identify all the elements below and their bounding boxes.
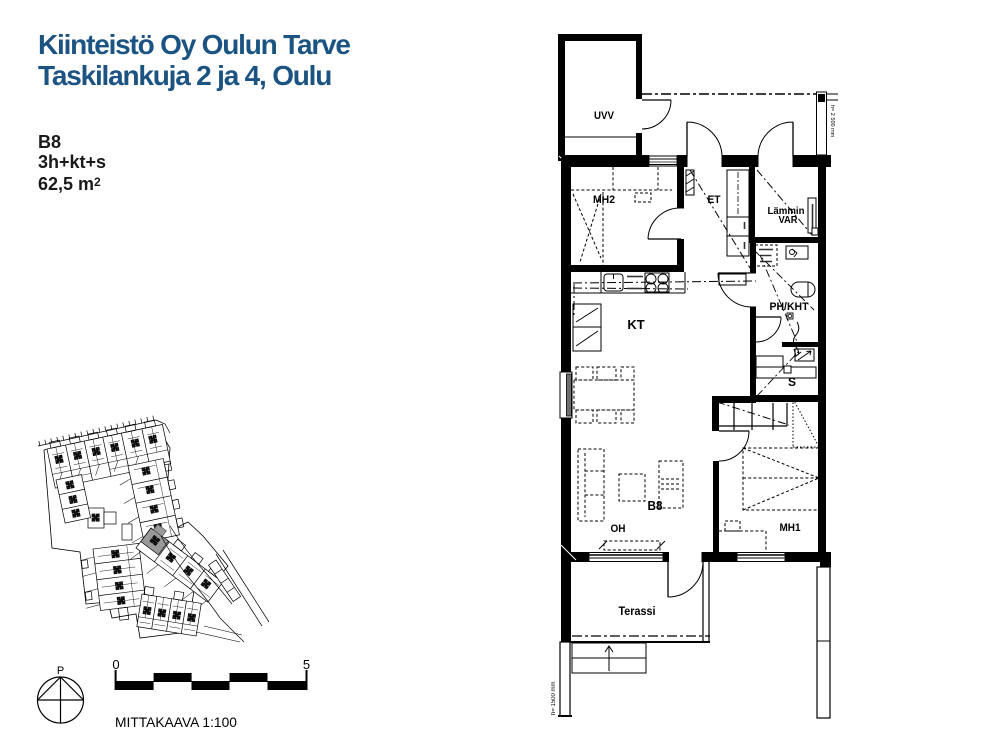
svg-text:ET: ET [708,194,721,206]
svg-text:PH/KHT: PH/KHT [770,301,809,313]
svg-text:Terassi: Terassi [619,606,656,618]
svg-text:UVV: UVV [594,110,615,122]
svg-text:VAR: VAR [779,215,799,226]
svg-text:OH: OH [611,523,626,535]
svg-text:B8: B8 [648,498,663,513]
svg-text:MITTAKAAVA 1:100: MITTAKAAVA 1:100 [115,715,237,730]
svg-text:KT: KT [627,317,644,332]
svg-text:0: 0 [112,657,119,672]
svg-text:P: P [57,665,64,677]
svg-text:MH1: MH1 [780,522,801,534]
svg-text:h= 1500 mm: h= 1500 mm [551,681,557,715]
svg-text:S: S [788,375,796,389]
svg-text:MH2: MH2 [593,194,615,206]
svg-text:5: 5 [303,657,310,672]
svg-text:h= 2 500 mm: h= 2 500 mm [829,105,835,138]
